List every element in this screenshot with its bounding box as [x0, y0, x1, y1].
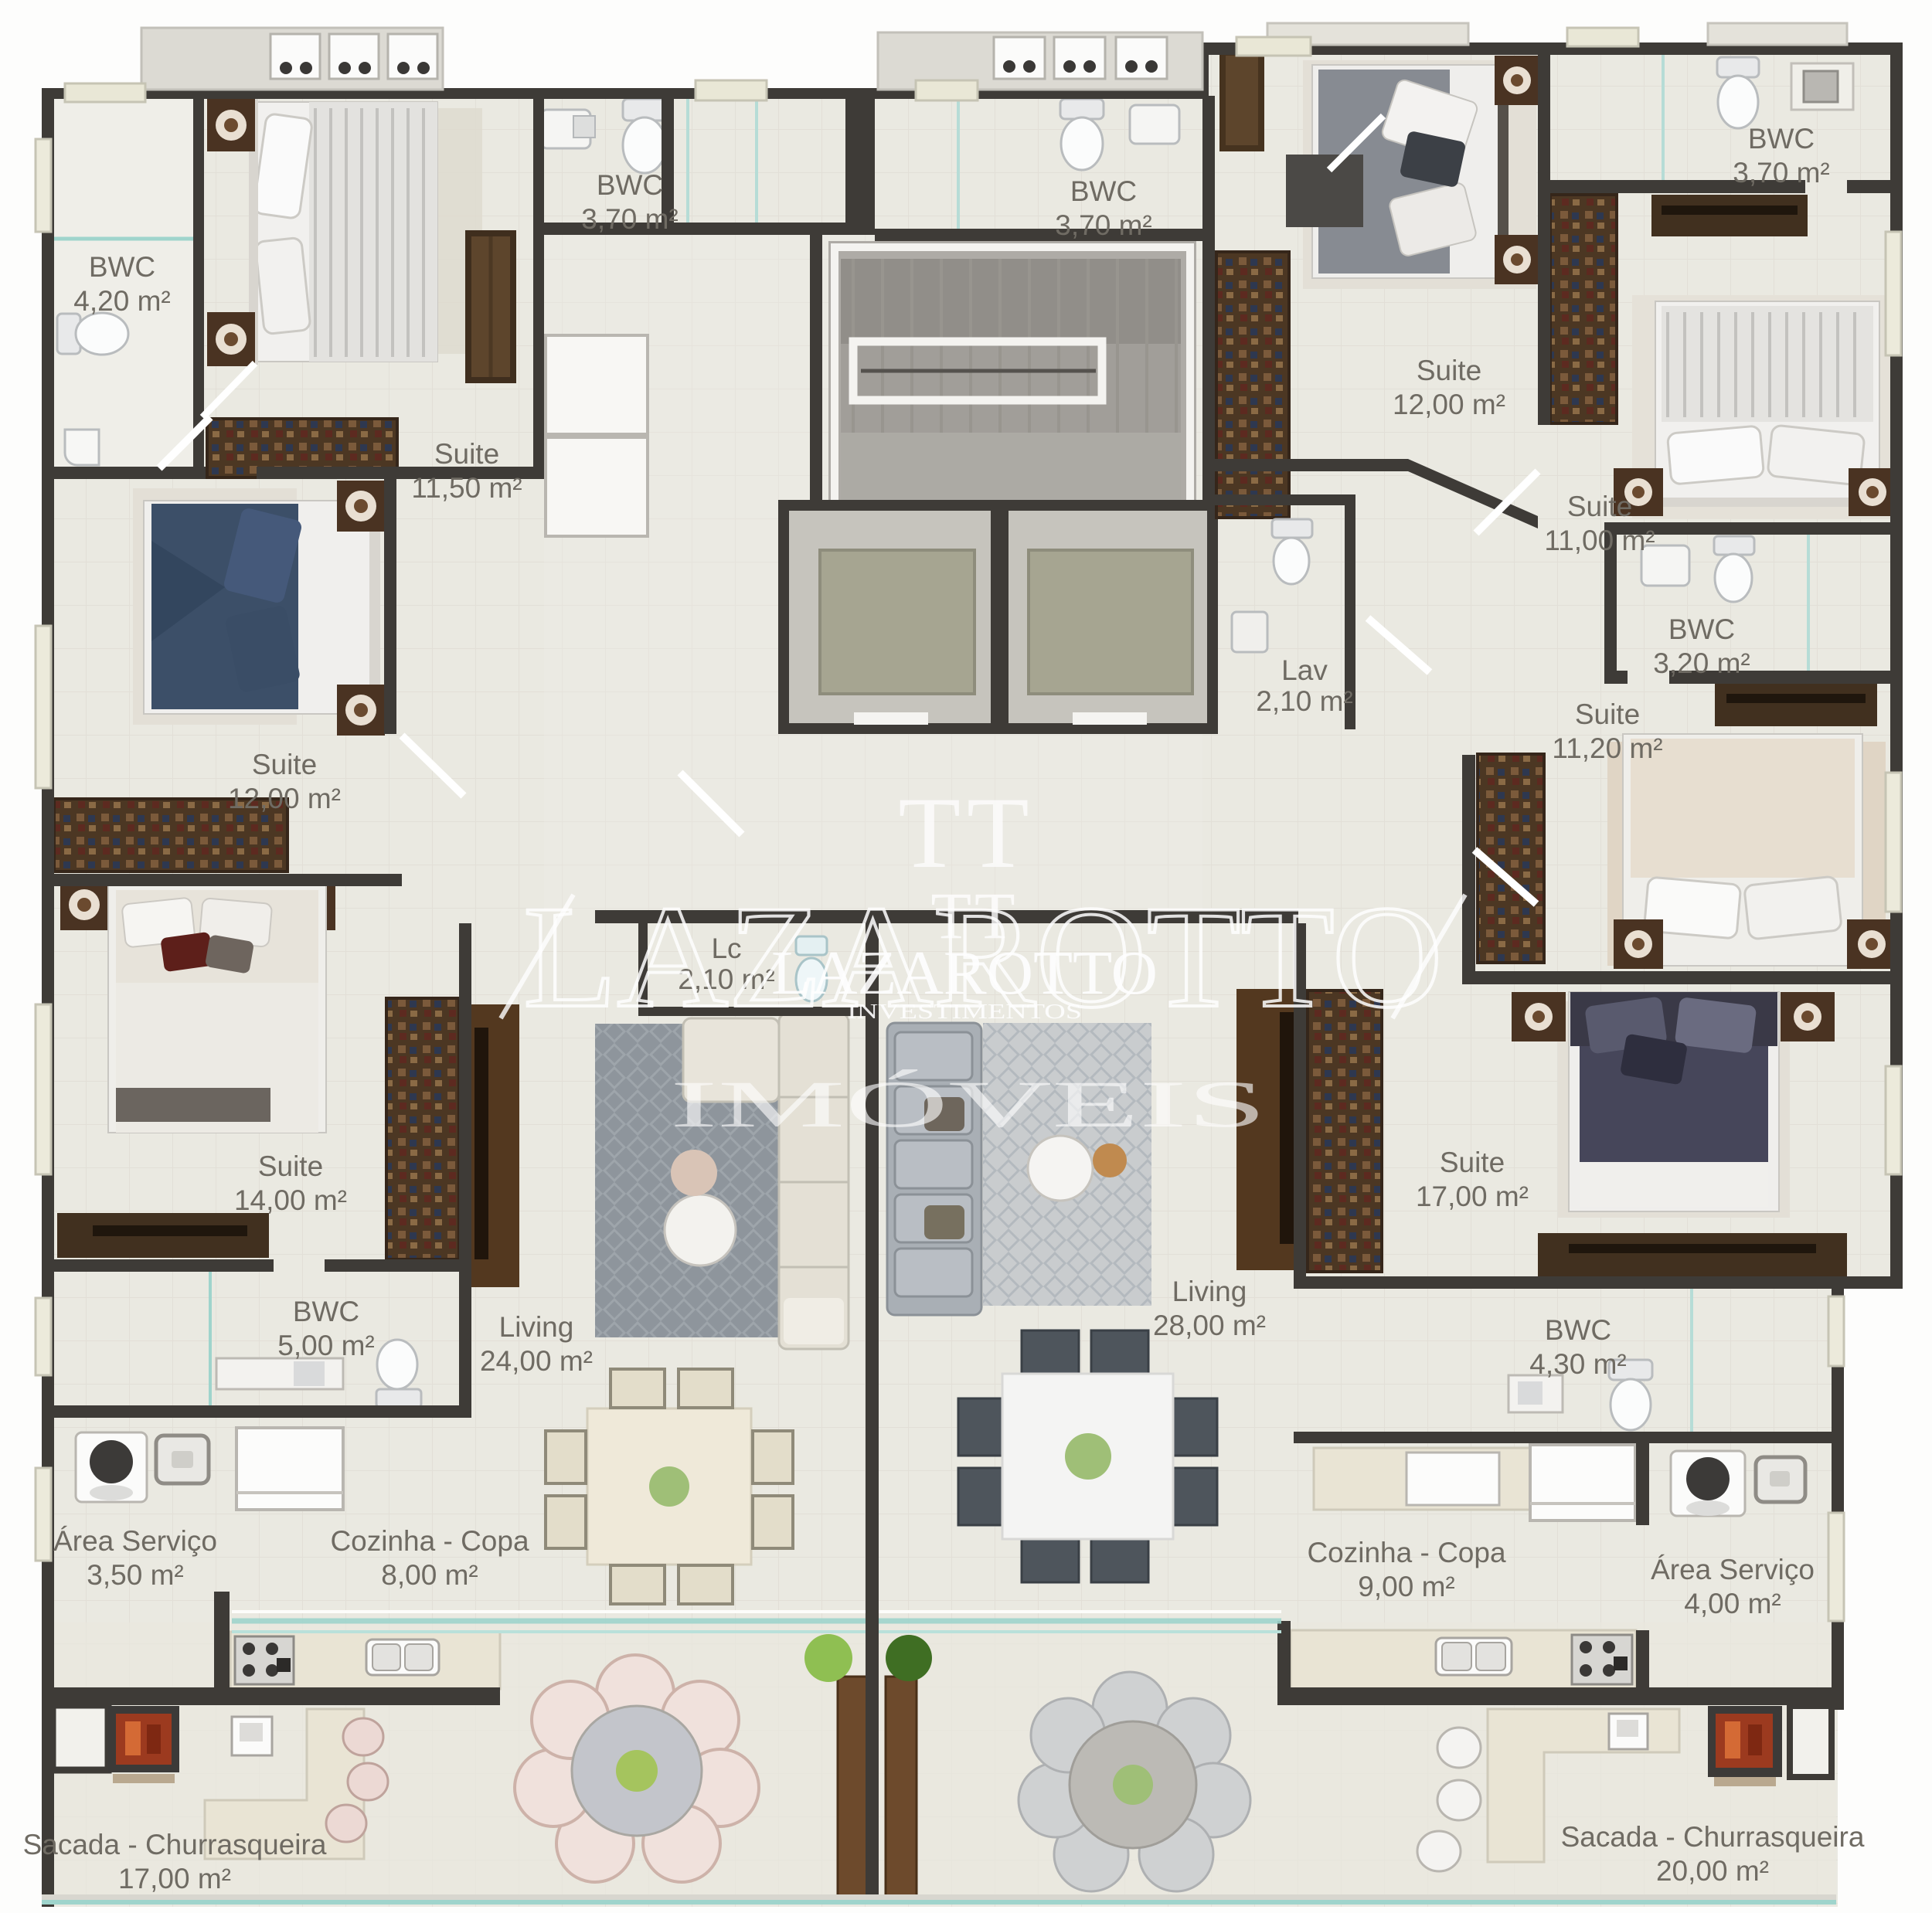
svg-text:INVESTIMENTOS: INVESTIMENTOS: [847, 1000, 1082, 1023]
svg-text:LAZAROTTO: LAZAROTTO: [771, 940, 1158, 1007]
svg-text:IMÓVEIS: IMÓVEIS: [670, 1067, 1267, 1141]
svg-text:TT: TT: [898, 776, 1035, 889]
